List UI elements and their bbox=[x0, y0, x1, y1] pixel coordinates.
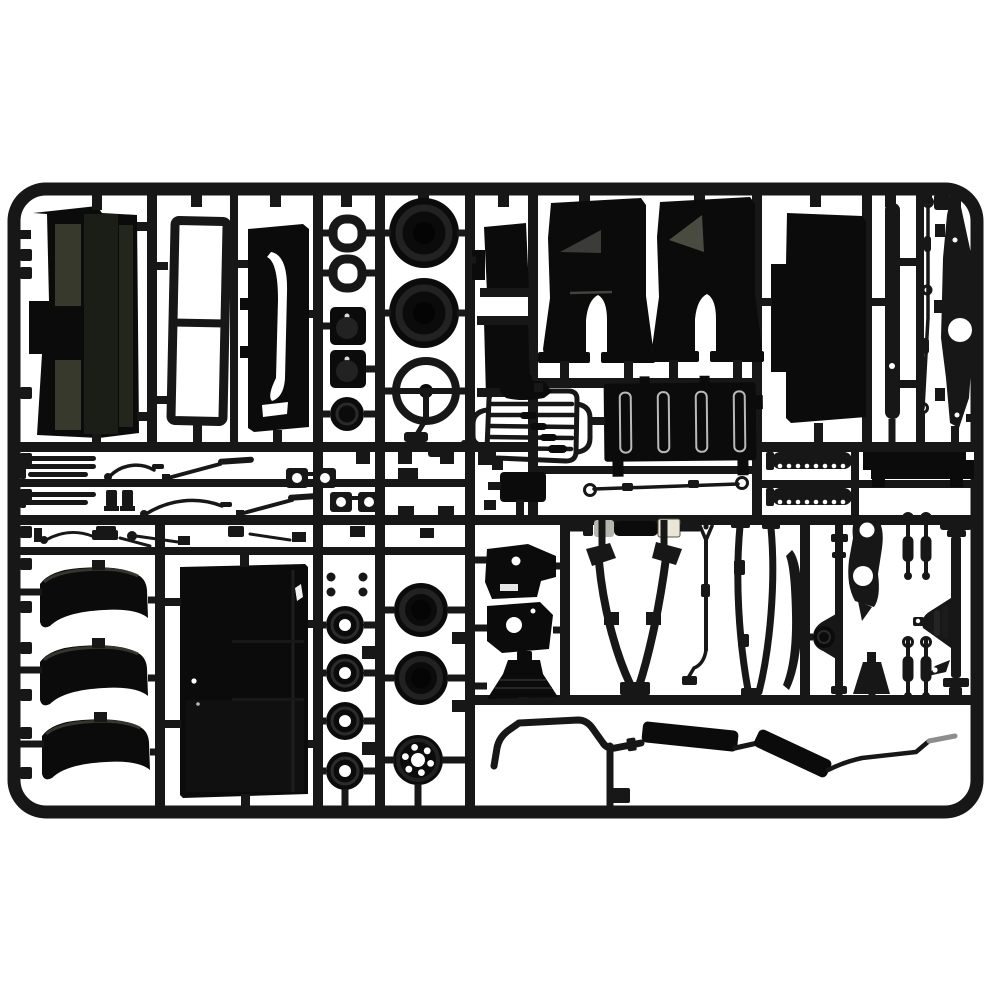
shock-links bbox=[903, 514, 932, 701]
exhaust-system bbox=[610, 721, 955, 809]
roof-panel bbox=[757, 213, 866, 447]
cab-corner-panels bbox=[538, 197, 764, 383]
cab-floor-panel bbox=[20, 192, 152, 448]
brake-drums bbox=[318, 573, 380, 812]
leaf-springs bbox=[586, 519, 780, 700]
front-tires bbox=[380, 198, 470, 348]
pedal bbox=[106, 490, 117, 507]
anti-roll-bar bbox=[494, 720, 641, 766]
tie-rod bbox=[585, 478, 748, 496]
sprue-photo bbox=[0, 0, 1000, 1000]
pedal bbox=[122, 490, 133, 507]
lamp-rings bbox=[318, 219, 380, 288]
window-frame bbox=[152, 220, 227, 448]
rear-axle bbox=[805, 521, 848, 700]
wheel-rim bbox=[380, 735, 470, 811]
door-panel-upper bbox=[234, 224, 318, 448]
sprue-drawing bbox=[0, 0, 1000, 1000]
engine-mounts bbox=[470, 544, 565, 653]
mudguards bbox=[16, 560, 160, 779]
fork-link bbox=[682, 520, 712, 685]
mounting-brackets bbox=[470, 223, 533, 397]
headlight-pods bbox=[318, 307, 380, 388]
funnel-bracket bbox=[853, 652, 890, 700]
pipe-clamps bbox=[286, 468, 380, 512]
shackle-springs bbox=[766, 448, 852, 506]
exhaust-tip bbox=[929, 736, 955, 741]
rear-tires bbox=[380, 583, 470, 712]
horn-disc bbox=[318, 397, 380, 431]
chassis-bar bbox=[867, 203, 920, 447]
radiator bbox=[590, 375, 764, 477]
door-panel-lower bbox=[160, 551, 318, 811]
axle-bracket bbox=[848, 516, 883, 621]
